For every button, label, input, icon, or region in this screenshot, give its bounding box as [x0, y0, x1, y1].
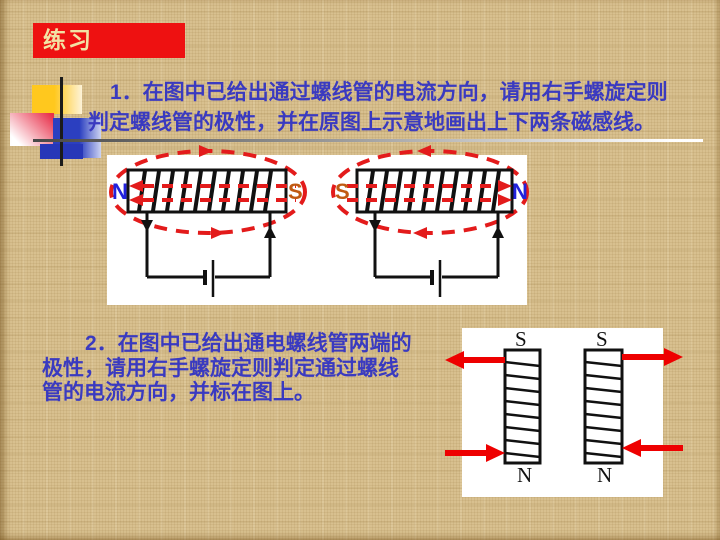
- pole-label-S: S: [288, 179, 303, 204]
- problem2-line3: 管的电流方向，并标在图上。: [42, 381, 432, 406]
- current-arrow-out-left: [445, 351, 464, 369]
- decor-vertical-line: [60, 77, 63, 166]
- pole-label-S: S: [515, 327, 527, 351]
- pole-label-N: N: [597, 463, 612, 487]
- problem2-line2: 极性，请用右手螺旋定则判定通过螺线: [42, 357, 432, 382]
- problem1-line2: 判定螺线管的极性，并在原图上示意地画出上下两条磁感线。: [88, 108, 708, 138]
- vertical-coils-diagram: S N S N: [438, 322, 693, 507]
- solenoid-field-diagram: N S: [100, 144, 530, 314]
- coil-body: [505, 350, 540, 463]
- current-arrow-out-right: [664, 348, 683, 366]
- solenoid-body: [128, 170, 286, 212]
- slide-background: 练习 1．在图中已给出通过螺线管的电流方向，请用右手螺旋定则 判定螺线管的极性，…: [0, 0, 720, 540]
- pole-label-N: N: [512, 179, 528, 204]
- problem2-line1: 2．在图中已给出通电螺线管两端的: [42, 332, 432, 357]
- horizontal-divider-line: [33, 139, 703, 142]
- pole-label-N: N: [112, 179, 128, 204]
- decor-yellow-square: [32, 85, 82, 114]
- coil-body: [585, 350, 622, 463]
- pole-label-N: N: [517, 463, 532, 487]
- problem1-text: 1．在图中已给出通过螺线管的电流方向，请用右手螺旋定则 判定螺线管的极性，并在原…: [88, 78, 708, 138]
- problem1-line1: 1．在图中已给出通过螺线管的电流方向，请用右手螺旋定则: [88, 78, 708, 108]
- slide-title: 练习: [33, 23, 185, 58]
- diagram2-white-panel: [462, 328, 663, 497]
- pole-label-S: S: [335, 179, 350, 204]
- pole-label-S: S: [596, 327, 608, 351]
- problem2-text: 2．在图中已给出通电螺线管两端的 极性，请用右手螺旋定则判定通过螺线 管的电流方…: [42, 332, 432, 406]
